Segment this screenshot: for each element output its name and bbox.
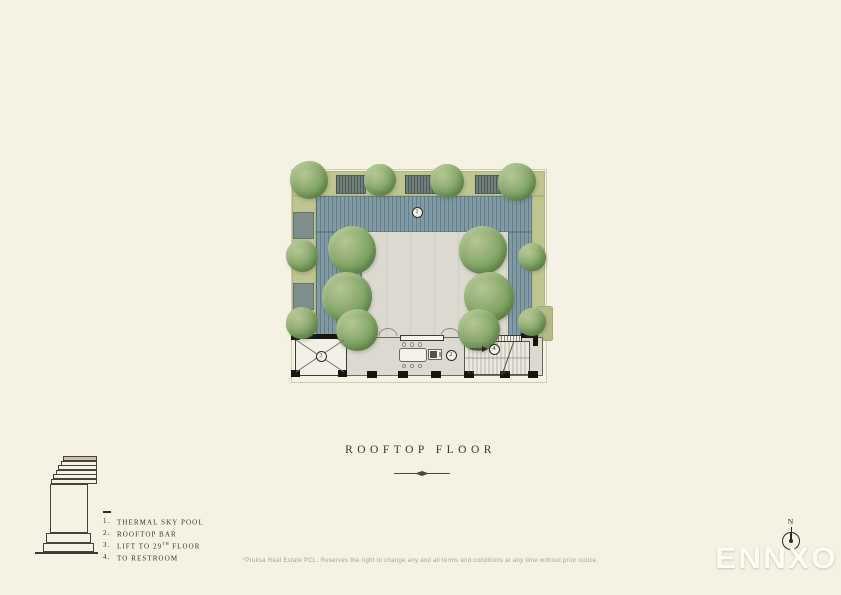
building-key-elevation	[0, 0, 841, 595]
legend: 1. THERMAL SKY POOL 2. ROOFTOP BAR 3. LI…	[100, 511, 204, 565]
marker-number: 3	[320, 353, 323, 359]
legend-dash	[103, 511, 111, 513]
marker-rooftop-bar: 2	[446, 350, 457, 361]
brochure-page: 1 2 3 4 1. THERMAL SKY POOL 2. ROOFTOP B…	[0, 0, 841, 595]
ornament-diamond	[415, 471, 429, 476]
marker-thermal-sky-pool: 1	[412, 207, 423, 218]
key-plan-ground-line	[35, 552, 98, 554]
title-ornament	[394, 470, 450, 477]
key-plan-base	[46, 533, 91, 543]
marker-number: 1	[416, 209, 419, 215]
legend-item-lift: 3. LIFT TO 29TH FLOOR	[100, 541, 204, 550]
key-plan-base	[43, 543, 94, 552]
page-title: ROOFTOP FLOOR	[0, 444, 841, 456]
key-plan-shaft	[50, 484, 88, 534]
marker-lift: 3	[316, 351, 327, 362]
legend-item-label: LIFT TO 29TH FLOOR	[117, 541, 201, 550]
north-label: N	[782, 517, 800, 526]
legend-item-number: 3.	[103, 541, 117, 550]
legend-item-number: 1.	[103, 517, 117, 526]
legend-item-label: THERMAL SKY POOL	[117, 517, 204, 526]
marker-number: 4	[493, 346, 496, 352]
legend-item-label: ROOFTOP BAR	[117, 529, 177, 538]
legend-item-rooftop-bar: 2. ROOFTOP BAR	[100, 529, 204, 538]
legend-item-thermal-sky-pool: 1. THERMAL SKY POOL	[100, 517, 204, 526]
legend-item-number: 2.	[103, 529, 117, 538]
disclaimer-text: *Pruksa Real Estate PCL. Reserves the ri…	[0, 558, 841, 564]
marker-number: 2	[450, 352, 453, 358]
marker-restroom: 4	[489, 344, 500, 355]
